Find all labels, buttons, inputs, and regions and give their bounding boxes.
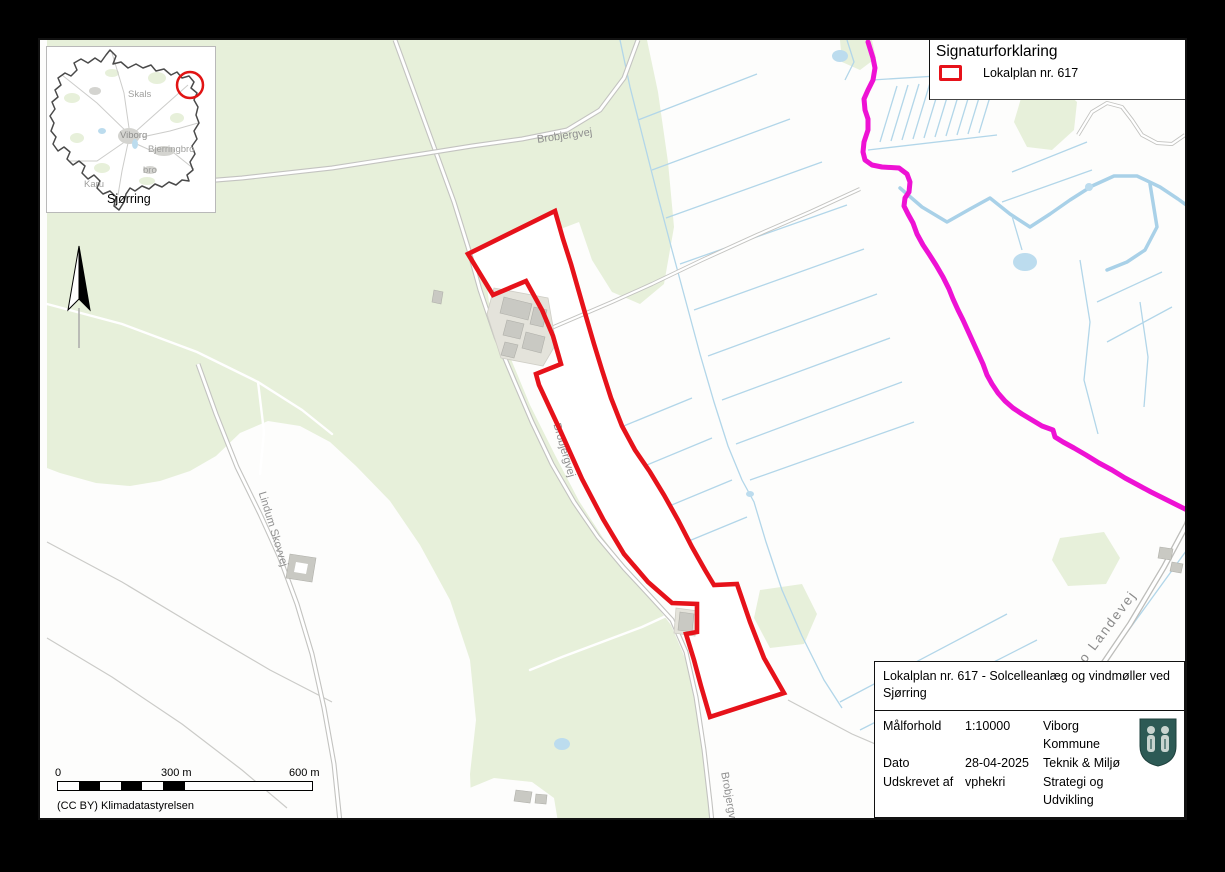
scale-bar-graphic (57, 781, 313, 791)
info-title-line2: Sjørring (883, 685, 1176, 702)
map-frame: Brobjergvej Brobjergvej Brobjergvej Lind… (38, 38, 1187, 820)
inset-town-bro: bro (143, 165, 157, 176)
legend-title: Signaturforklaring (936, 43, 1179, 61)
scale-bar: 0 300 m 600 m (57, 767, 327, 791)
info-row-label: Målforhold (883, 717, 963, 753)
legend-item-label: Lokalplan nr. 617 (983, 66, 1078, 80)
info-title-line1: Lokalplan nr. 617 - Solcelleanlæg og vin… (883, 668, 1176, 685)
scale-tick-0: 0 (55, 767, 61, 779)
info-row-value: 28-04-2025 (965, 754, 1041, 772)
scale-tick-300: 300 m (161, 767, 192, 779)
inset-caption: Sjørring (107, 192, 151, 206)
road-label-brobjergvej-bottom: Brobjergvej (718, 771, 739, 820)
info-row-value: vphekri (965, 773, 1041, 809)
info-row-org: Strategi og Udvikling (1043, 773, 1136, 809)
viborg-coat-of-arms-icon (1138, 717, 1178, 767)
locator-circle-icon (177, 72, 203, 98)
inset-town-viborg: Viborg (120, 130, 147, 141)
legend-item: Lokalplan nr. 617 (936, 65, 1179, 81)
page: Brobjergvej Brobjergvej Brobjergvej Lind… (0, 0, 1225, 872)
info-row-label: Udskrevet af (883, 773, 963, 809)
info-row-org: Teknik & Miljø (1043, 754, 1136, 772)
plan-area-symbol-icon (939, 65, 962, 81)
inset-town-skals: Skals (128, 89, 151, 100)
info-box: Lokalplan nr. 617 - Solcelleanlæg og vin… (874, 661, 1185, 818)
scale-tick-600: 600 m (289, 767, 320, 779)
road-label-lindum-skovvej: Lindum Skovvej (256, 490, 290, 568)
inset-locator-map: Skals Viborg Bjerringbro bro Karu Sjørri… (46, 46, 216, 213)
info-row-org: Viborg Kommune (1043, 717, 1136, 753)
inset-town-bjerringbro: Bjerringbro (148, 144, 194, 155)
inset-town-karup: Karu (84, 179, 104, 190)
attribution-text: (CC BY) Klimadatastyrelsen (57, 800, 194, 812)
info-row-value: 1:10000 (965, 717, 1041, 753)
legend-box: Signaturforklaring Lokalplan nr. 617 (929, 40, 1185, 100)
info-row-label: Dato (883, 754, 963, 772)
